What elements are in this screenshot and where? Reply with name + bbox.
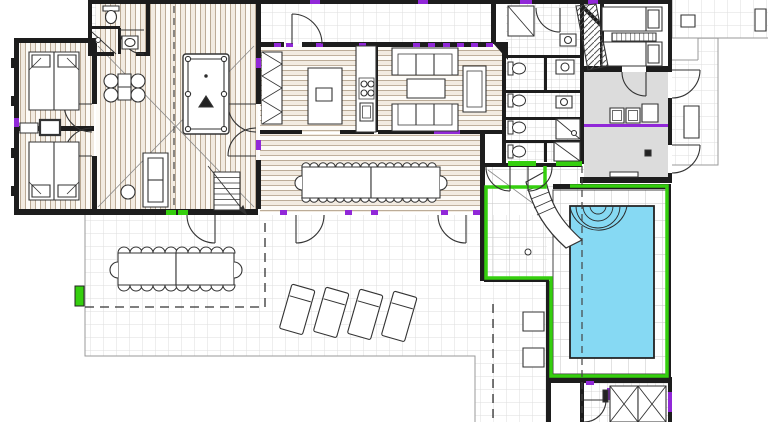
- kitchen-island: [308, 68, 342, 124]
- kitchen-counter: [356, 46, 376, 132]
- living-sofa-bottom: [392, 104, 458, 131]
- courtyard-patio: [258, 4, 494, 44]
- single-bed-2: [602, 42, 662, 66]
- billiard-table: [183, 54, 229, 134]
- ac-unit-2: [755, 9, 766, 31]
- outdoor-dining-table: [110, 247, 242, 291]
- ac-unit-1: [681, 15, 695, 27]
- armchair: [463, 66, 486, 112]
- staircase: [208, 166, 246, 214]
- floor-plan-image: [0, 0, 768, 422]
- double-bed-upper: [29, 52, 79, 110]
- walkway-right-notch: [698, 38, 718, 60]
- games-tables-and-chairs: [104, 74, 145, 102]
- coffee-table: [407, 79, 445, 98]
- double-bed-lower: [29, 142, 79, 200]
- living-sofa-top: [392, 48, 458, 75]
- indoor-dining-table: [295, 163, 447, 202]
- wardrobe-x-units: [603, 386, 666, 422]
- pantry-shelves: [262, 52, 282, 124]
- utility-room-lower: [584, 126, 668, 178]
- single-bed-1: [602, 7, 662, 31]
- dresser: [612, 33, 656, 41]
- walkway-bench: [684, 106, 699, 138]
